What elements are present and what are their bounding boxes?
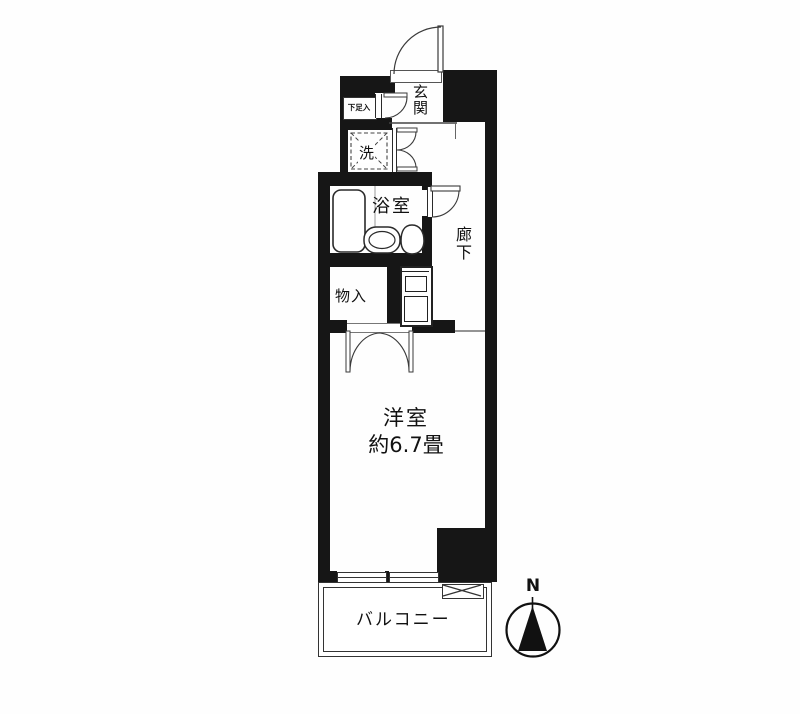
label-washer: 洗 bbox=[358, 142, 375, 163]
shoebox-door-leaf bbox=[384, 93, 407, 97]
washer-door-arc-bottom bbox=[397, 150, 416, 167]
washer-door-arc-top bbox=[397, 132, 416, 150]
compass-needle bbox=[518, 606, 547, 651]
closet-door-arc-right bbox=[379, 333, 409, 371]
entrance-door-leaf bbox=[438, 26, 443, 72]
bathroom-door-arc bbox=[432, 191, 459, 217]
label-genkan: 玄関 bbox=[410, 84, 431, 116]
label-compass-north: N bbox=[521, 576, 545, 596]
floor-plan-page: 玄関 下足入 洗 浴室 廊下 物入 洋室 約6.7畳 バルコニー N bbox=[0, 0, 800, 714]
label-hallway: 廊下 bbox=[450, 226, 474, 262]
entrance-door-arc bbox=[394, 27, 441, 74]
bathroom-door-leaf bbox=[431, 186, 460, 191]
label-balcony: バルコニー bbox=[356, 605, 451, 630]
label-shoe-box: 下足入 bbox=[343, 102, 375, 113]
label-main-room-size: 約6.7畳 bbox=[330, 429, 482, 459]
label-bathroom: 浴室 bbox=[372, 192, 412, 218]
label-storage: 物入 bbox=[335, 285, 367, 306]
label-main-room: 洋室 bbox=[330, 402, 482, 432]
closet-door-leaf-right bbox=[409, 331, 413, 372]
toilet bbox=[401, 225, 424, 254]
shoebox-door-arc bbox=[385, 97, 407, 118]
washer-door-leaf-top bbox=[397, 128, 417, 132]
washer-door-leaf-bottom bbox=[397, 167, 417, 171]
closet-door-leaf-left bbox=[346, 331, 350, 372]
balcony-box-cross bbox=[443, 585, 481, 596]
closet-door-arc-left bbox=[350, 333, 380, 371]
bathtub bbox=[333, 190, 365, 252]
